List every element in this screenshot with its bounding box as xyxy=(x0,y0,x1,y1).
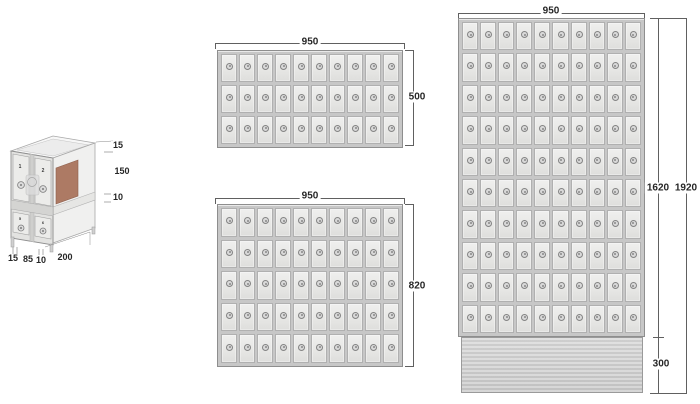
locker-door xyxy=(516,148,532,176)
lock-icon xyxy=(467,220,474,227)
locker-door xyxy=(571,22,587,50)
locker-door xyxy=(552,210,568,238)
locker-door xyxy=(480,242,496,270)
locker-door xyxy=(552,242,568,270)
locker-door xyxy=(534,22,550,50)
lock-icon xyxy=(298,344,305,351)
locker-door xyxy=(462,116,478,144)
locker-door xyxy=(462,22,478,50)
locker-door xyxy=(516,85,532,113)
locker-door xyxy=(462,242,478,270)
locker-door xyxy=(589,210,605,238)
locker-door xyxy=(589,85,605,113)
locker-door xyxy=(498,273,514,301)
locker-door xyxy=(329,208,345,237)
locker-door xyxy=(516,242,532,270)
locker-door xyxy=(221,271,237,300)
locker-row xyxy=(462,179,641,207)
locker-door xyxy=(257,116,273,144)
lock-icon xyxy=(558,314,565,321)
locker-door xyxy=(534,242,550,270)
lock-icon xyxy=(521,251,528,258)
locker-door xyxy=(293,208,309,237)
locker-row xyxy=(462,273,641,301)
locker-door xyxy=(480,305,496,333)
lock-icon xyxy=(576,157,583,164)
locker-door xyxy=(293,54,309,82)
lock-icon xyxy=(612,62,619,69)
locker-door xyxy=(329,334,345,363)
lock-icon xyxy=(244,312,251,319)
locker-door xyxy=(589,179,605,207)
locker-door xyxy=(625,242,641,270)
lock-icon xyxy=(370,63,377,70)
lock-icon xyxy=(316,312,323,319)
lock-icon xyxy=(388,125,395,132)
locker-door xyxy=(571,210,587,238)
lock-icon xyxy=(521,94,528,101)
locker-door xyxy=(625,179,641,207)
locker-door xyxy=(625,22,641,50)
locker-door xyxy=(480,273,496,301)
locker-door xyxy=(607,53,623,81)
lock-icon xyxy=(558,220,565,227)
lock-icon xyxy=(612,282,619,289)
lock-icon xyxy=(594,220,601,227)
locker-door xyxy=(239,85,255,113)
lock-icon xyxy=(262,312,269,319)
locker-door xyxy=(383,54,399,82)
locker-door xyxy=(239,303,255,332)
locker-door xyxy=(516,179,532,207)
lock-icon xyxy=(334,249,341,256)
lock-icon xyxy=(280,312,287,319)
iso-dim-frame-width: 15 xyxy=(6,254,20,264)
lock-icon xyxy=(298,217,305,224)
lock-icon xyxy=(521,31,528,38)
locker-door xyxy=(365,334,381,363)
lock-icon xyxy=(539,220,546,227)
lock-icon xyxy=(630,282,637,289)
lock-icon xyxy=(467,282,474,289)
locker-row xyxy=(462,22,641,50)
lock-icon xyxy=(612,314,619,321)
lock-icon xyxy=(244,94,251,101)
lock-icon xyxy=(226,217,233,224)
locker-door xyxy=(498,85,514,113)
locker-door xyxy=(516,305,532,333)
locker-door xyxy=(589,148,605,176)
locker-door xyxy=(275,85,291,113)
locker-door xyxy=(365,208,381,237)
iso-dim-divider-width: 10 xyxy=(34,256,48,266)
locker-door xyxy=(293,85,309,113)
lock-icon xyxy=(485,157,492,164)
locker-door xyxy=(552,85,568,113)
locker-door xyxy=(462,53,478,81)
locker-door xyxy=(239,54,255,82)
locker-door xyxy=(607,305,623,333)
lock-icon xyxy=(244,217,251,224)
lock-icon xyxy=(262,63,269,70)
lock-icon xyxy=(558,31,565,38)
lock-icon xyxy=(558,62,565,69)
locker-door xyxy=(480,53,496,81)
cabinet-5x10 xyxy=(217,204,403,367)
locker-door xyxy=(462,273,478,301)
lock-icon xyxy=(558,94,565,101)
lock-icon xyxy=(576,282,583,289)
locker-door xyxy=(257,85,273,113)
unit-c-dim-bottom-tick xyxy=(650,393,687,394)
lock-pin-icon xyxy=(42,230,44,232)
locker-row xyxy=(221,116,399,144)
lock-pin-icon xyxy=(20,227,22,229)
lock-pin-icon xyxy=(42,188,44,190)
lock-icon xyxy=(370,125,377,132)
lock-icon xyxy=(316,344,323,351)
locker-door xyxy=(534,116,550,144)
locker-door xyxy=(552,273,568,301)
locker-door xyxy=(625,148,641,176)
locker-door xyxy=(498,53,514,81)
locker-door xyxy=(275,303,291,332)
cabinet-3x10 xyxy=(217,50,403,148)
lock-pin-icon xyxy=(20,184,22,186)
locker-row xyxy=(221,240,399,269)
locker-row xyxy=(462,305,641,333)
locker-door xyxy=(383,85,399,113)
lock-icon xyxy=(612,251,619,258)
lock-icon xyxy=(503,251,510,258)
locker-door xyxy=(311,303,327,332)
lock-icon xyxy=(280,280,287,287)
locker-door xyxy=(589,305,605,333)
lock-icon xyxy=(316,280,323,287)
iso-dim-door-height: 150 xyxy=(112,167,131,177)
locker-door xyxy=(516,116,532,144)
locker-door xyxy=(239,208,255,237)
unit-c-total-height-label: 1920 xyxy=(673,183,699,194)
lock-icon xyxy=(370,94,377,101)
locker-row xyxy=(221,54,399,82)
lock-icon xyxy=(630,157,637,164)
locker-door xyxy=(607,85,623,113)
locker-door xyxy=(275,208,291,237)
locker-door xyxy=(498,210,514,238)
lock-icon xyxy=(388,63,395,70)
locker-door xyxy=(347,303,363,332)
lock-icon xyxy=(352,217,359,224)
lock-icon xyxy=(467,188,474,195)
lock-icon xyxy=(226,312,233,319)
iso-front-divider xyxy=(30,154,34,242)
locker-door xyxy=(498,116,514,144)
locker-door xyxy=(607,22,623,50)
locker-door xyxy=(293,303,309,332)
lock-icon xyxy=(298,94,305,101)
locker-door xyxy=(311,85,327,113)
locker-door xyxy=(347,208,363,237)
locker-door xyxy=(625,53,641,81)
lock-icon xyxy=(262,249,269,256)
locker-row xyxy=(221,271,399,300)
locker-door xyxy=(607,210,623,238)
lock-icon xyxy=(485,31,492,38)
iso-dim-door-width: 85 xyxy=(21,255,35,265)
lock-icon xyxy=(467,157,474,164)
lock-icon xyxy=(521,314,528,321)
lock-icon xyxy=(539,157,546,164)
lock-icon xyxy=(503,125,510,132)
locker-door xyxy=(329,116,345,144)
lock-icon xyxy=(521,282,528,289)
unit-b-width-label: 950 xyxy=(300,191,321,202)
lock-icon xyxy=(521,188,528,195)
locker-door xyxy=(275,116,291,144)
lock-icon xyxy=(388,280,395,287)
lock-icon xyxy=(485,314,492,321)
lock-icon xyxy=(558,125,565,132)
locker-door xyxy=(221,116,237,144)
locker-row xyxy=(462,210,641,238)
lock-icon xyxy=(576,314,583,321)
lock-icon xyxy=(594,157,601,164)
lock-icon xyxy=(630,220,637,227)
lock-icon xyxy=(467,31,474,38)
locker-door xyxy=(239,116,255,144)
locker-door xyxy=(607,116,623,144)
locker-door xyxy=(516,22,532,50)
locker-door xyxy=(221,303,237,332)
lock-icon xyxy=(594,314,601,321)
locker-row xyxy=(221,85,399,113)
locker-door xyxy=(607,242,623,270)
locker-row xyxy=(462,116,641,144)
locker-door xyxy=(329,271,345,300)
lock-icon xyxy=(370,344,377,351)
unit-c-width-label: 950 xyxy=(541,6,562,17)
locker-door xyxy=(347,85,363,113)
lock-icon xyxy=(316,63,323,70)
lock-icon xyxy=(334,63,341,70)
lock-icon xyxy=(594,125,601,132)
lock-icon xyxy=(388,249,395,256)
locker-door xyxy=(239,271,255,300)
lock-icon xyxy=(521,157,528,164)
locker-door xyxy=(480,179,496,207)
locker-door xyxy=(552,179,568,207)
locker-row xyxy=(462,53,641,81)
lock-icon xyxy=(334,125,341,132)
locker-door xyxy=(534,273,550,301)
locker-door xyxy=(516,210,532,238)
lock-icon xyxy=(226,94,233,101)
locker-door xyxy=(480,210,496,238)
locker-door xyxy=(571,85,587,113)
lock-icon xyxy=(576,188,583,195)
lock-icon xyxy=(334,217,341,224)
locker-door xyxy=(589,22,605,50)
lock-icon xyxy=(503,62,510,69)
locker-door xyxy=(257,271,273,300)
lock-icon xyxy=(539,125,546,132)
locker-door xyxy=(589,242,605,270)
lock-icon xyxy=(388,344,395,351)
locker-door xyxy=(347,240,363,269)
unit-a-width-label: 950 xyxy=(300,37,321,48)
lock-icon xyxy=(521,220,528,227)
lock-icon xyxy=(485,282,492,289)
locker-door xyxy=(571,116,587,144)
lock-icon xyxy=(521,62,528,69)
locker-door xyxy=(311,54,327,82)
locker-door xyxy=(257,54,273,82)
lock-icon xyxy=(485,94,492,101)
locker-door xyxy=(589,116,605,144)
locker-door xyxy=(293,116,309,144)
iso-dim-depth: 200 xyxy=(55,253,74,263)
lock-icon xyxy=(298,249,305,256)
lock-icon xyxy=(612,125,619,132)
iso-dim-top-thickness: 15 xyxy=(111,141,125,151)
locker-door xyxy=(311,271,327,300)
locker-door xyxy=(311,334,327,363)
lock-icon xyxy=(298,312,305,319)
lock-icon xyxy=(503,282,510,289)
locker-door xyxy=(571,273,587,301)
locker-door xyxy=(607,148,623,176)
lock-icon xyxy=(539,62,546,69)
lock-icon xyxy=(352,94,359,101)
locker-door xyxy=(293,240,309,269)
lock-icon xyxy=(352,312,359,319)
locker-door xyxy=(498,179,514,207)
lock-icon xyxy=(503,31,510,38)
lock-icon xyxy=(594,251,601,258)
lock-icon xyxy=(280,125,287,132)
lock-icon xyxy=(576,31,583,38)
lock-icon xyxy=(576,251,583,258)
lock-icon xyxy=(352,280,359,287)
lock-icon xyxy=(334,312,341,319)
locker-door xyxy=(365,240,381,269)
lock-icon xyxy=(316,249,323,256)
iso-door-number-1: 1 xyxy=(19,164,22,170)
iso-lock-mechanism xyxy=(26,175,39,195)
locker-door xyxy=(571,242,587,270)
lock-icon xyxy=(612,220,619,227)
locker-door xyxy=(462,148,478,176)
locker-door xyxy=(552,305,568,333)
lock-icon xyxy=(280,344,287,351)
lock-icon xyxy=(334,344,341,351)
locker-door xyxy=(534,305,550,333)
locker-door xyxy=(275,334,291,363)
locker-door xyxy=(534,179,550,207)
locker-door xyxy=(365,303,381,332)
locker-door xyxy=(383,116,399,144)
lock-icon xyxy=(467,62,474,69)
unit-c-dim-top-tick xyxy=(650,18,687,19)
locker-door xyxy=(365,85,381,113)
lock-icon xyxy=(226,249,233,256)
locker-door xyxy=(571,148,587,176)
lock-icon xyxy=(316,125,323,132)
locker-door xyxy=(625,210,641,238)
lock-icon xyxy=(539,314,546,321)
lock-icon xyxy=(244,249,251,256)
lock-icon xyxy=(226,125,233,132)
locker-door xyxy=(625,85,641,113)
locker-door xyxy=(365,116,381,144)
lock-icon xyxy=(226,344,233,351)
lock-icon xyxy=(280,63,287,70)
lock-icon xyxy=(558,188,565,195)
iso-dim-shelf-thickness: 10 xyxy=(111,193,125,203)
unit-b-height-label: 820 xyxy=(407,281,428,292)
lock-icon xyxy=(503,157,510,164)
lock-icon xyxy=(576,62,583,69)
lock-icon xyxy=(594,31,601,38)
lock-icon xyxy=(594,282,601,289)
locker-door xyxy=(221,54,237,82)
locker-door xyxy=(534,210,550,238)
locker-door xyxy=(589,273,605,301)
lock-icon xyxy=(503,220,510,227)
locker-door xyxy=(462,85,478,113)
locker-door xyxy=(275,240,291,269)
lock-icon xyxy=(298,280,305,287)
locker-door xyxy=(239,240,255,269)
lock-icon xyxy=(352,249,359,256)
locker-row xyxy=(462,242,641,270)
lock-icon xyxy=(521,125,528,132)
locker-door xyxy=(329,85,345,113)
lock-icon xyxy=(262,125,269,132)
technical-drawing-canvas: 1 2 5 6 15 150 10 15 85 10 200 950 500 9… xyxy=(0,0,700,404)
lock-icon xyxy=(485,62,492,69)
locker-door xyxy=(257,303,273,332)
locker-door xyxy=(625,116,641,144)
iso-leg xyxy=(11,237,14,247)
locker-door xyxy=(293,334,309,363)
locker-door xyxy=(571,53,587,81)
locker-door xyxy=(607,179,623,207)
locker-door xyxy=(383,334,399,363)
lock-icon xyxy=(316,94,323,101)
locker-door xyxy=(347,54,363,82)
lock-icon xyxy=(388,312,395,319)
locker-door xyxy=(383,303,399,332)
lock-icon xyxy=(467,251,474,258)
lock-icon xyxy=(558,251,565,258)
lock-icon xyxy=(539,94,546,101)
lock-icon xyxy=(630,251,637,258)
locker-row xyxy=(221,208,399,237)
locker-door xyxy=(552,22,568,50)
unit-c-body-dim-line xyxy=(658,18,659,393)
unit-c-total-dim-line xyxy=(686,18,687,393)
locker-door xyxy=(480,116,496,144)
lock-icon xyxy=(630,31,637,38)
lock-icon xyxy=(594,62,601,69)
locker-door xyxy=(498,305,514,333)
locker-door xyxy=(534,148,550,176)
lock-icon xyxy=(485,220,492,227)
locker-door xyxy=(498,242,514,270)
locker-door xyxy=(329,54,345,82)
